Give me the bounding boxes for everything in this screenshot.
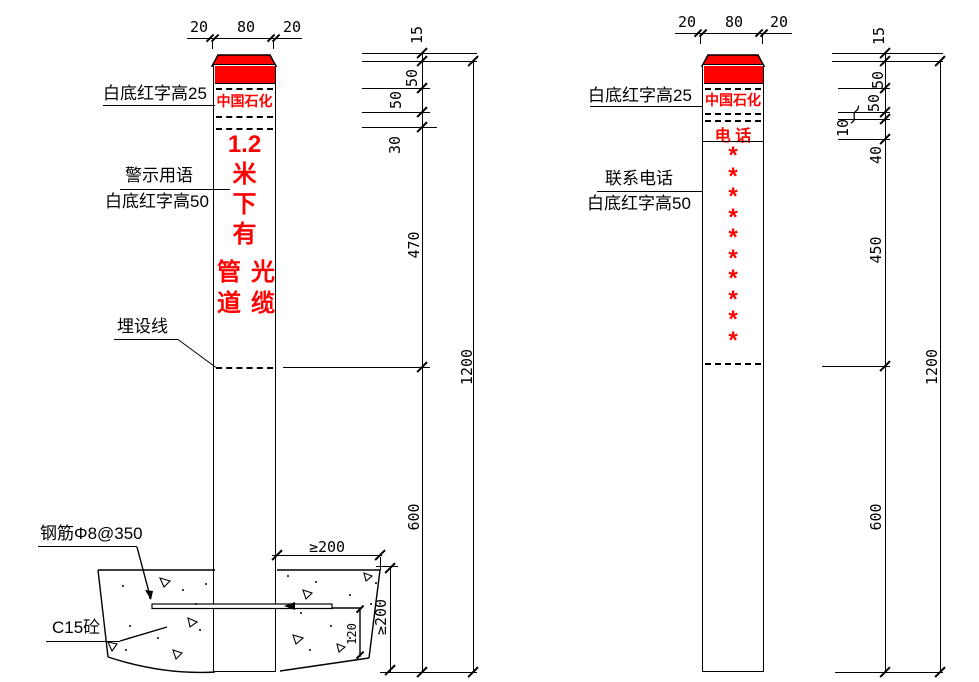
dim-label-20: 20 (770, 13, 788, 31)
warning-text-col2: 光 缆 (250, 257, 276, 319)
dim-label-band1: 50 (869, 71, 887, 89)
dim-ext-line (832, 53, 943, 54)
label-contact-sub: 白底红字高50 (587, 194, 691, 214)
label-leader (114, 339, 178, 340)
dim-ext-stub (380, 557, 381, 570)
dim-ext-line (283, 367, 430, 368)
dim-label-20: 20 (283, 18, 301, 36)
marker-post-drawing: 20 80 20 中国石化 1.2 米 下 有 管 道 光 缆 白底红字高25 … (0, 0, 979, 682)
brand-text: 中国石化 (214, 91, 275, 111)
dim-label-found-width: ≥200 (309, 538, 345, 556)
post-red-band (215, 66, 275, 84)
band-dashed-line (705, 113, 761, 115)
dim-label-phone: 40 (867, 146, 885, 164)
label-leader (120, 189, 230, 190)
dim-label-cap: 15 (408, 26, 426, 44)
label-warn-title: 警示用语 (125, 166, 193, 186)
dim-label-band2: 50 (387, 91, 405, 109)
dim-label-total: 1200 (923, 349, 941, 385)
dim-label-text-zone: 450 (867, 236, 885, 263)
label-leader (103, 105, 215, 106)
dim-label-80: 80 (725, 13, 743, 31)
dim-label-20: 20 (190, 18, 208, 36)
dim-ext-line (832, 61, 943, 62)
label-cap-right: 白底红字高25 (588, 86, 692, 106)
dim-label-gap: 10 (834, 119, 852, 137)
dim-label-20: 20 (678, 13, 696, 31)
warning-text: 1.2 米 下 有 (213, 130, 276, 250)
dim-ext-line (380, 672, 477, 673)
dim-label-80: 80 (237, 18, 255, 36)
burial-dashed-line (705, 363, 761, 365)
label-cap-left: 白底红字高25 (103, 84, 207, 104)
dim-label-buried: 600 (405, 503, 423, 530)
label-leader (597, 191, 703, 192)
dim-ext-line (822, 366, 890, 367)
dim-ext-line (376, 566, 398, 567)
post-red-band (704, 66, 763, 84)
dim-label-cap: 15 (870, 27, 888, 45)
burial-dashed-line (216, 367, 273, 369)
brand-text: 中国石化 (702, 90, 764, 110)
dim-label-gap: 30 (386, 136, 404, 154)
dim-label-found-inner: 120 (345, 623, 359, 645)
dim-label-band2: 50 (865, 94, 883, 112)
dim-line-found-depth (390, 566, 391, 672)
label-leader (178, 339, 216, 368)
phone-number-asterisks: * * * * * * * * * * (702, 146, 764, 351)
label-warn-sub: 白底红字高50 (105, 192, 209, 212)
dim-label-total: 1200 (458, 349, 476, 385)
label-leader (590, 106, 703, 107)
dim-line-inner-left (422, 53, 423, 672)
dim-label-band1: 50 (403, 69, 421, 87)
dim-label-text-zone: 470 (405, 231, 423, 258)
warning-text-col1: 管 道 (216, 257, 242, 319)
band-dashed-line (216, 116, 273, 118)
concrete-dots (122, 575, 377, 651)
label-burial: 埋设线 (117, 317, 168, 337)
dim-ext-line (835, 672, 943, 673)
dim-line-top-right (675, 33, 792, 34)
dim-label-found-depth: ≥200 (372, 599, 390, 635)
label-contact-title: 联系电话 (605, 169, 673, 189)
leader-arrow (145, 590, 153, 600)
dim-line-top-left (187, 38, 302, 39)
dim-label-buried: 600 (867, 503, 885, 530)
dim-ext-line (362, 127, 437, 128)
band-dashed-line (216, 88, 273, 90)
dim-ext-stub (762, 35, 763, 44)
